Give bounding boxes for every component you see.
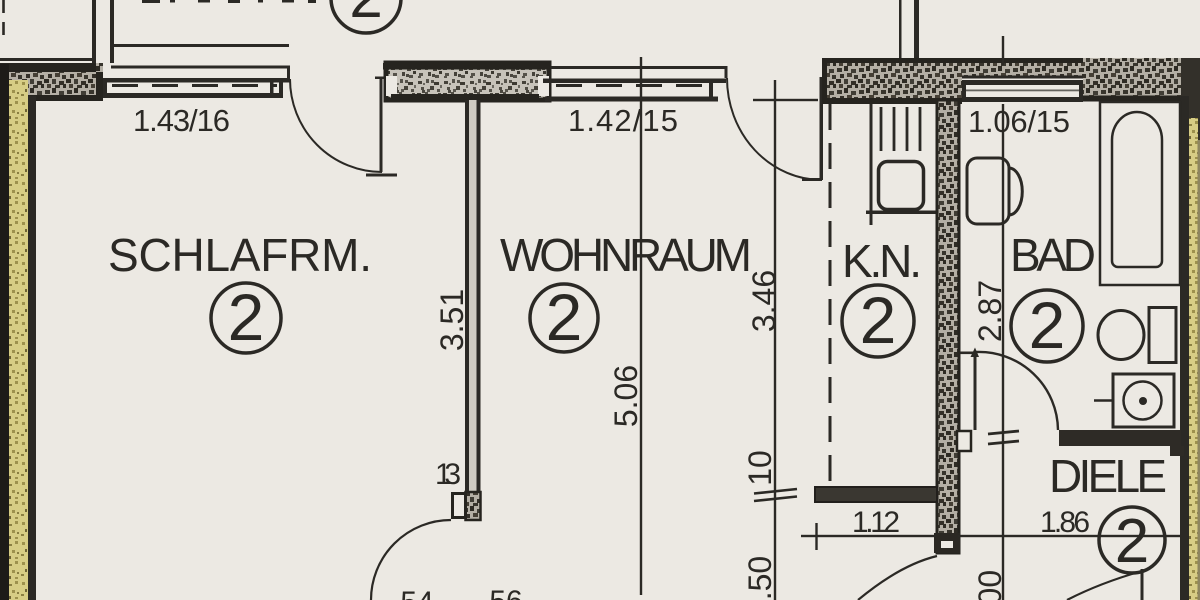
svg-text:1.86: 1.86: [1040, 506, 1090, 539]
svg-text:1.12: 1.12: [852, 506, 900, 539]
svg-text:3.51: 3.51: [434, 289, 470, 351]
svg-text:56: 56: [489, 585, 522, 600]
svg-text:SCHLAFRM.: SCHLAFRM.: [108, 229, 372, 281]
svg-text:2: 2: [349, 0, 382, 30]
svg-text:.50: .50: [742, 556, 778, 600]
svg-text:2: 2: [860, 283, 897, 357]
svg-text:2: 2: [546, 280, 583, 354]
svg-text:2: 2: [228, 280, 265, 354]
svg-text:BAD: BAD: [1010, 229, 1096, 281]
svg-text:1.42/15: 1.42/15: [568, 103, 678, 138]
svg-text:10: 10: [742, 450, 778, 486]
svg-text:WOHNRAUM: WOHNRAUM: [500, 229, 752, 281]
svg-text:K.N.: K.N.: [842, 235, 922, 287]
svg-text:2: 2: [1115, 507, 1149, 576]
svg-text:1.06/15: 1.06/15: [968, 104, 1070, 139]
svg-text:13: 13: [435, 458, 461, 491]
svg-text:2.87: 2.87: [972, 280, 1008, 342]
svg-text:54: 54: [400, 586, 433, 600]
svg-text:2: 2: [1029, 288, 1066, 362]
svg-text:2.00: 2.00: [972, 570, 1008, 600]
svg-text:1.43/16: 1.43/16: [133, 103, 230, 138]
svg-text:DIELE: DIELE: [1049, 450, 1167, 502]
svg-text:5.06: 5.06: [608, 365, 644, 427]
